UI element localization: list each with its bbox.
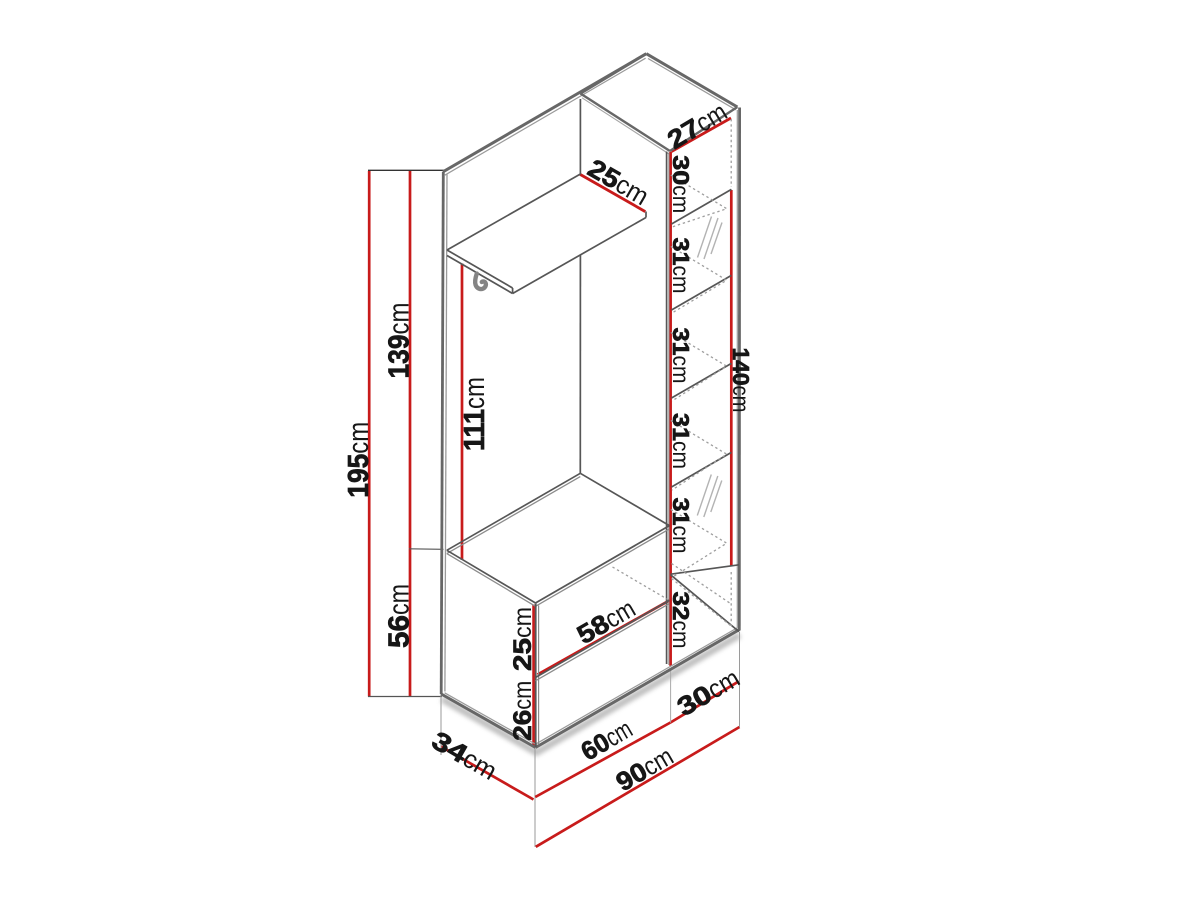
svg-text:31: 31 xyxy=(668,413,694,441)
svg-text:139: 139 xyxy=(383,335,415,379)
svg-text:cm: cm xyxy=(343,422,375,454)
svg-text:cm: cm xyxy=(383,303,415,335)
svg-text:cm: cm xyxy=(728,386,754,413)
svg-text:cm: cm xyxy=(509,681,537,710)
svg-text:31: 31 xyxy=(668,238,694,266)
svg-text:cm: cm xyxy=(509,607,537,638)
svg-text:56: 56 xyxy=(383,615,415,648)
svg-text:cm: cm xyxy=(459,377,491,409)
svg-text:cm: cm xyxy=(668,441,694,469)
svg-text:31: 31 xyxy=(668,328,694,356)
svg-text:25: 25 xyxy=(509,638,537,671)
svg-text:cm: cm xyxy=(668,526,694,554)
svg-text:cm: cm xyxy=(668,621,694,649)
svg-text:30: 30 xyxy=(668,155,694,185)
svg-text:cm: cm xyxy=(668,356,694,384)
svg-text:26: 26 xyxy=(509,710,537,741)
svg-text:195: 195 xyxy=(343,454,375,498)
svg-text:cm: cm xyxy=(668,266,694,294)
svg-text:31: 31 xyxy=(668,498,694,526)
svg-text:cm: cm xyxy=(383,584,415,615)
svg-text:32: 32 xyxy=(668,592,694,621)
svg-text:cm: cm xyxy=(668,185,694,213)
svg-text:140: 140 xyxy=(728,348,754,386)
svg-text:111: 111 xyxy=(459,409,491,451)
